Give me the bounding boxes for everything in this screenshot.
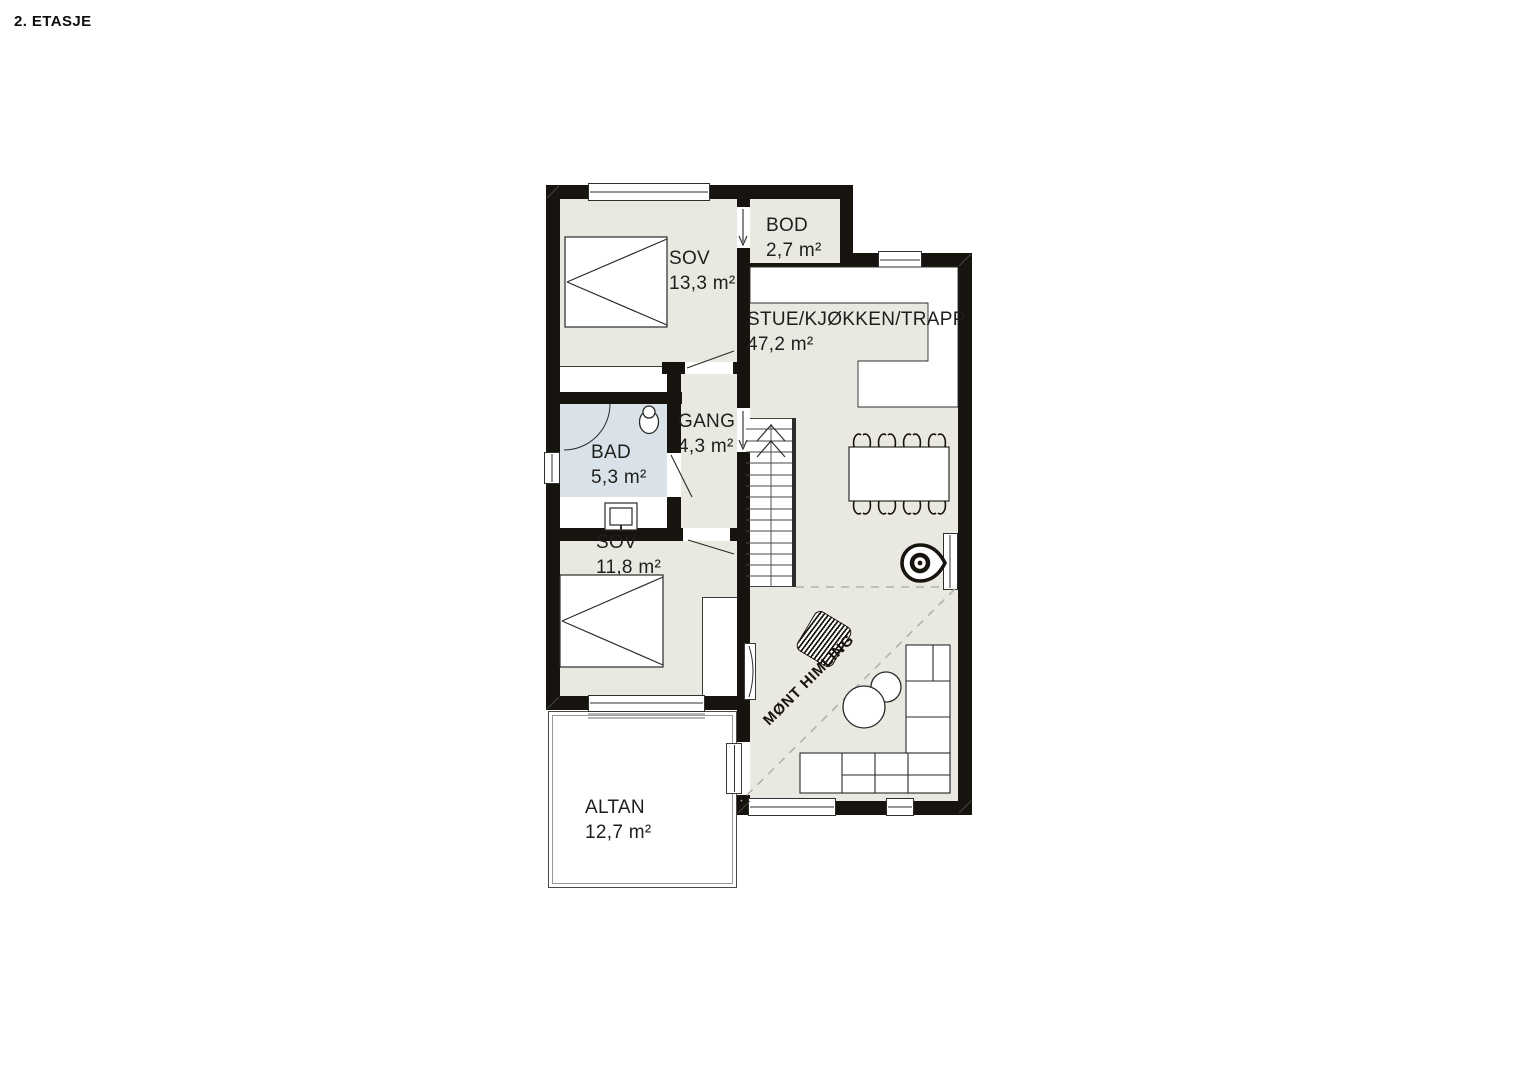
door-gang-stue — [737, 408, 750, 452]
wall-bad-top — [546, 392, 682, 404]
window-stue-bottom-large — [748, 798, 836, 816]
closet-sov1 — [559, 366, 668, 394]
door-gang-bad — [667, 453, 681, 497]
wall-center-vertical — [737, 185, 750, 815]
window-stue-right — [943, 533, 958, 590]
door-sov1-gang — [685, 362, 733, 374]
wardrobe-sov2 — [702, 597, 738, 698]
wall-bod-bottom — [737, 263, 853, 276]
room-label-bad: BAD 5,3 m² — [591, 440, 647, 490]
window-bad-left — [544, 452, 560, 484]
room-label-bod: BOD 2,7 m² — [766, 213, 822, 263]
window-stue-top — [878, 251, 922, 269]
room-label-altan: ALTAN 12,7 m² — [585, 795, 652, 845]
room-label-stue: STUE/KJØKKEN/TRAPP 47,2 m² — [747, 307, 966, 357]
altan-sliding-door — [726, 743, 742, 794]
page-title: 2. ETASJE — [14, 13, 92, 30]
door-sov1-bod — [737, 207, 750, 248]
floor-plan-page: 2. ETASJE — [0, 0, 1527, 1080]
stue-left-door-leaf — [744, 643, 756, 700]
wall-left — [546, 185, 560, 710]
bad-vanity-counter — [559, 497, 667, 528]
door-gang-sov2 — [683, 528, 730, 541]
room-label-sov2: SOV 11,8 m² — [596, 530, 661, 580]
window-sov1-top — [588, 183, 710, 201]
room-label-gang: GANG 4,3 m² — [678, 409, 735, 459]
window-stue-bottom-small — [886, 798, 914, 816]
window-sov2-bottom — [588, 695, 705, 712]
room-label-sov1: SOV 13,3 m² — [669, 246, 736, 296]
stairs-area — [746, 418, 796, 587]
